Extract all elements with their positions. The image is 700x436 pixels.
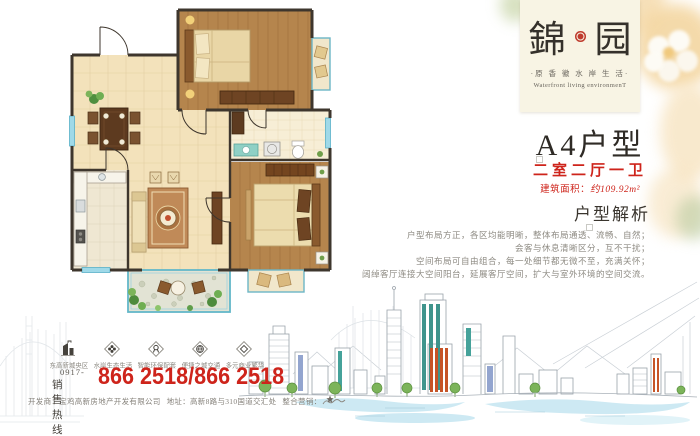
side-table (150, 172, 161, 183)
master-bedroom (178, 10, 312, 110)
analysis-text: 户型布局方正，各区均能明晰，整体布局通透、流畅、自然； 会客与休息清晰区分，互不… (270, 229, 650, 281)
analysis-line: 阔绰客厅连接大空间阳台，延展客厅空间，扩大与室外环境的空间交流。 (270, 268, 650, 281)
bath-closet (232, 112, 244, 134)
lamp (186, 90, 195, 99)
dresser (220, 91, 294, 104)
phone-numbers: 866 2518/866 2518 (98, 363, 284, 391)
plant (317, 151, 323, 157)
bathroom (230, 110, 330, 160)
address-info: 地址：高新8路与310国道交汇处 (167, 397, 277, 406)
side-table (168, 172, 179, 183)
unit-area: 建筑面积：约109.92m² (518, 181, 662, 195)
area-code: 0917- (60, 367, 85, 377)
gem-icon (235, 340, 253, 358)
building-icon (59, 340, 77, 358)
balcony-table (171, 281, 185, 295)
bay-window-master (312, 38, 330, 90)
analysis-heading: 户型解析 (574, 200, 650, 225)
kitchen (72, 170, 128, 270)
brand-name: 錦 园 (520, 10, 640, 62)
area-label: 建筑面积： (540, 185, 590, 195)
bench (246, 190, 251, 240)
analysis-line: 户型布局方正，各区均能明晰，整体布局通透、流畅、自然； (270, 229, 650, 242)
marketing-label: 整合营销： (282, 397, 321, 406)
flower-icon (103, 340, 121, 358)
unit-layout: 二室二厅一卫 (518, 159, 662, 180)
bed-headboard (185, 30, 194, 82)
legal-line: 开发商：宝鸡高新房地产开发有限公司地址：高新8路与310国道交汇处整合营销： (28, 394, 328, 408)
agency-signature-logo (321, 394, 347, 408)
lamp (186, 16, 195, 25)
red-seal-icon (575, 31, 586, 42)
area-value: 约109.92m² (590, 185, 640, 195)
globe-icon (191, 340, 209, 358)
balcony (128, 270, 230, 312)
analysis-line: 会客与休息清晰区分，互不干扰； (270, 242, 650, 255)
brand-logo-card: 錦 园 ·原 香 徽 水 岸 生 活· Waterfront living en… (520, 0, 640, 112)
brand-char-right: 园 (595, 9, 632, 63)
brand-slogan-en: Waterfront living environmenT (520, 82, 640, 89)
brand-char-left: 錦 (529, 9, 566, 63)
analysis-line: 空间布局可自由组合，每一处细节都无微不至，充满关怀； (270, 255, 650, 268)
poster-canvas: 錦 园 ·原 香 徽 水 岸 生 活· Waterfront living en… (0, 0, 700, 436)
entry-door (100, 27, 128, 55)
toilet (292, 146, 303, 159)
developer-info: 开发商：宝鸡高新房地产开发有限公司 (28, 397, 161, 406)
brand-slogan: ·原 香 徽 水 岸 生 活· (520, 68, 640, 79)
ribbon-icon (147, 340, 165, 358)
